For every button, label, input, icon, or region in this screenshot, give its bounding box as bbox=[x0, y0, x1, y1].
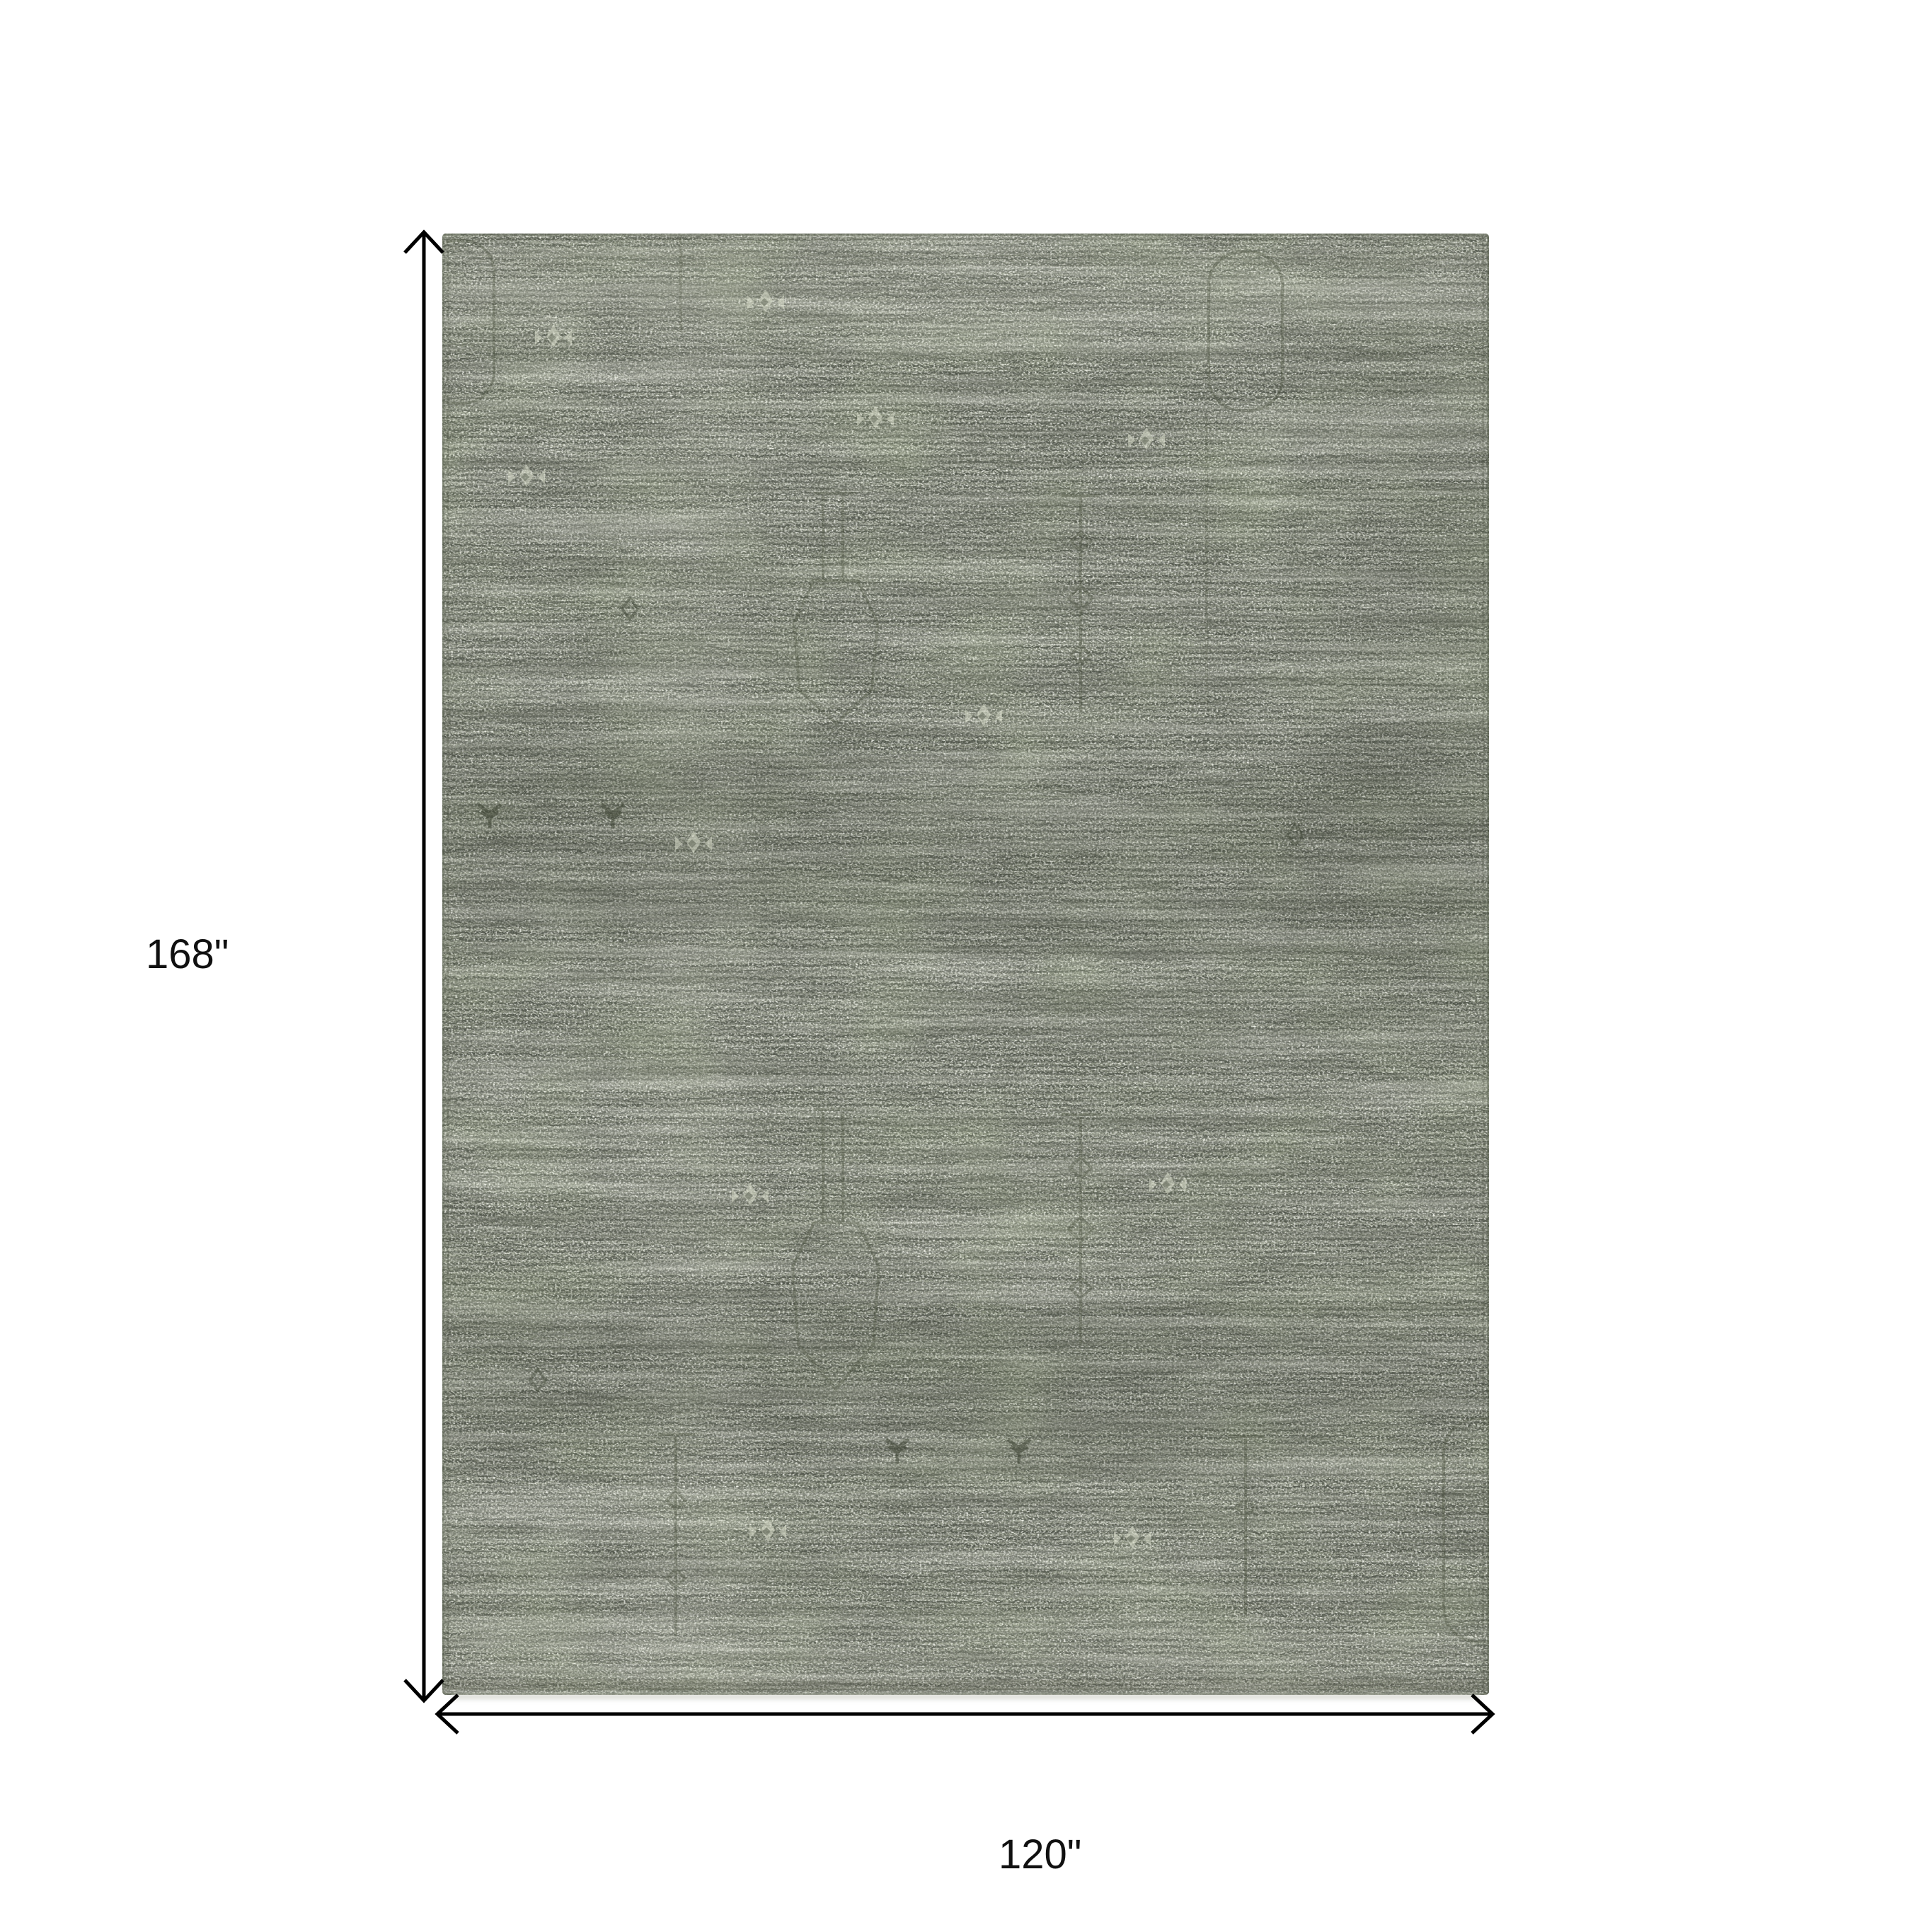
svg-text:120": 120" bbox=[999, 1832, 1081, 1878]
svg-text:168": 168" bbox=[146, 931, 229, 977]
